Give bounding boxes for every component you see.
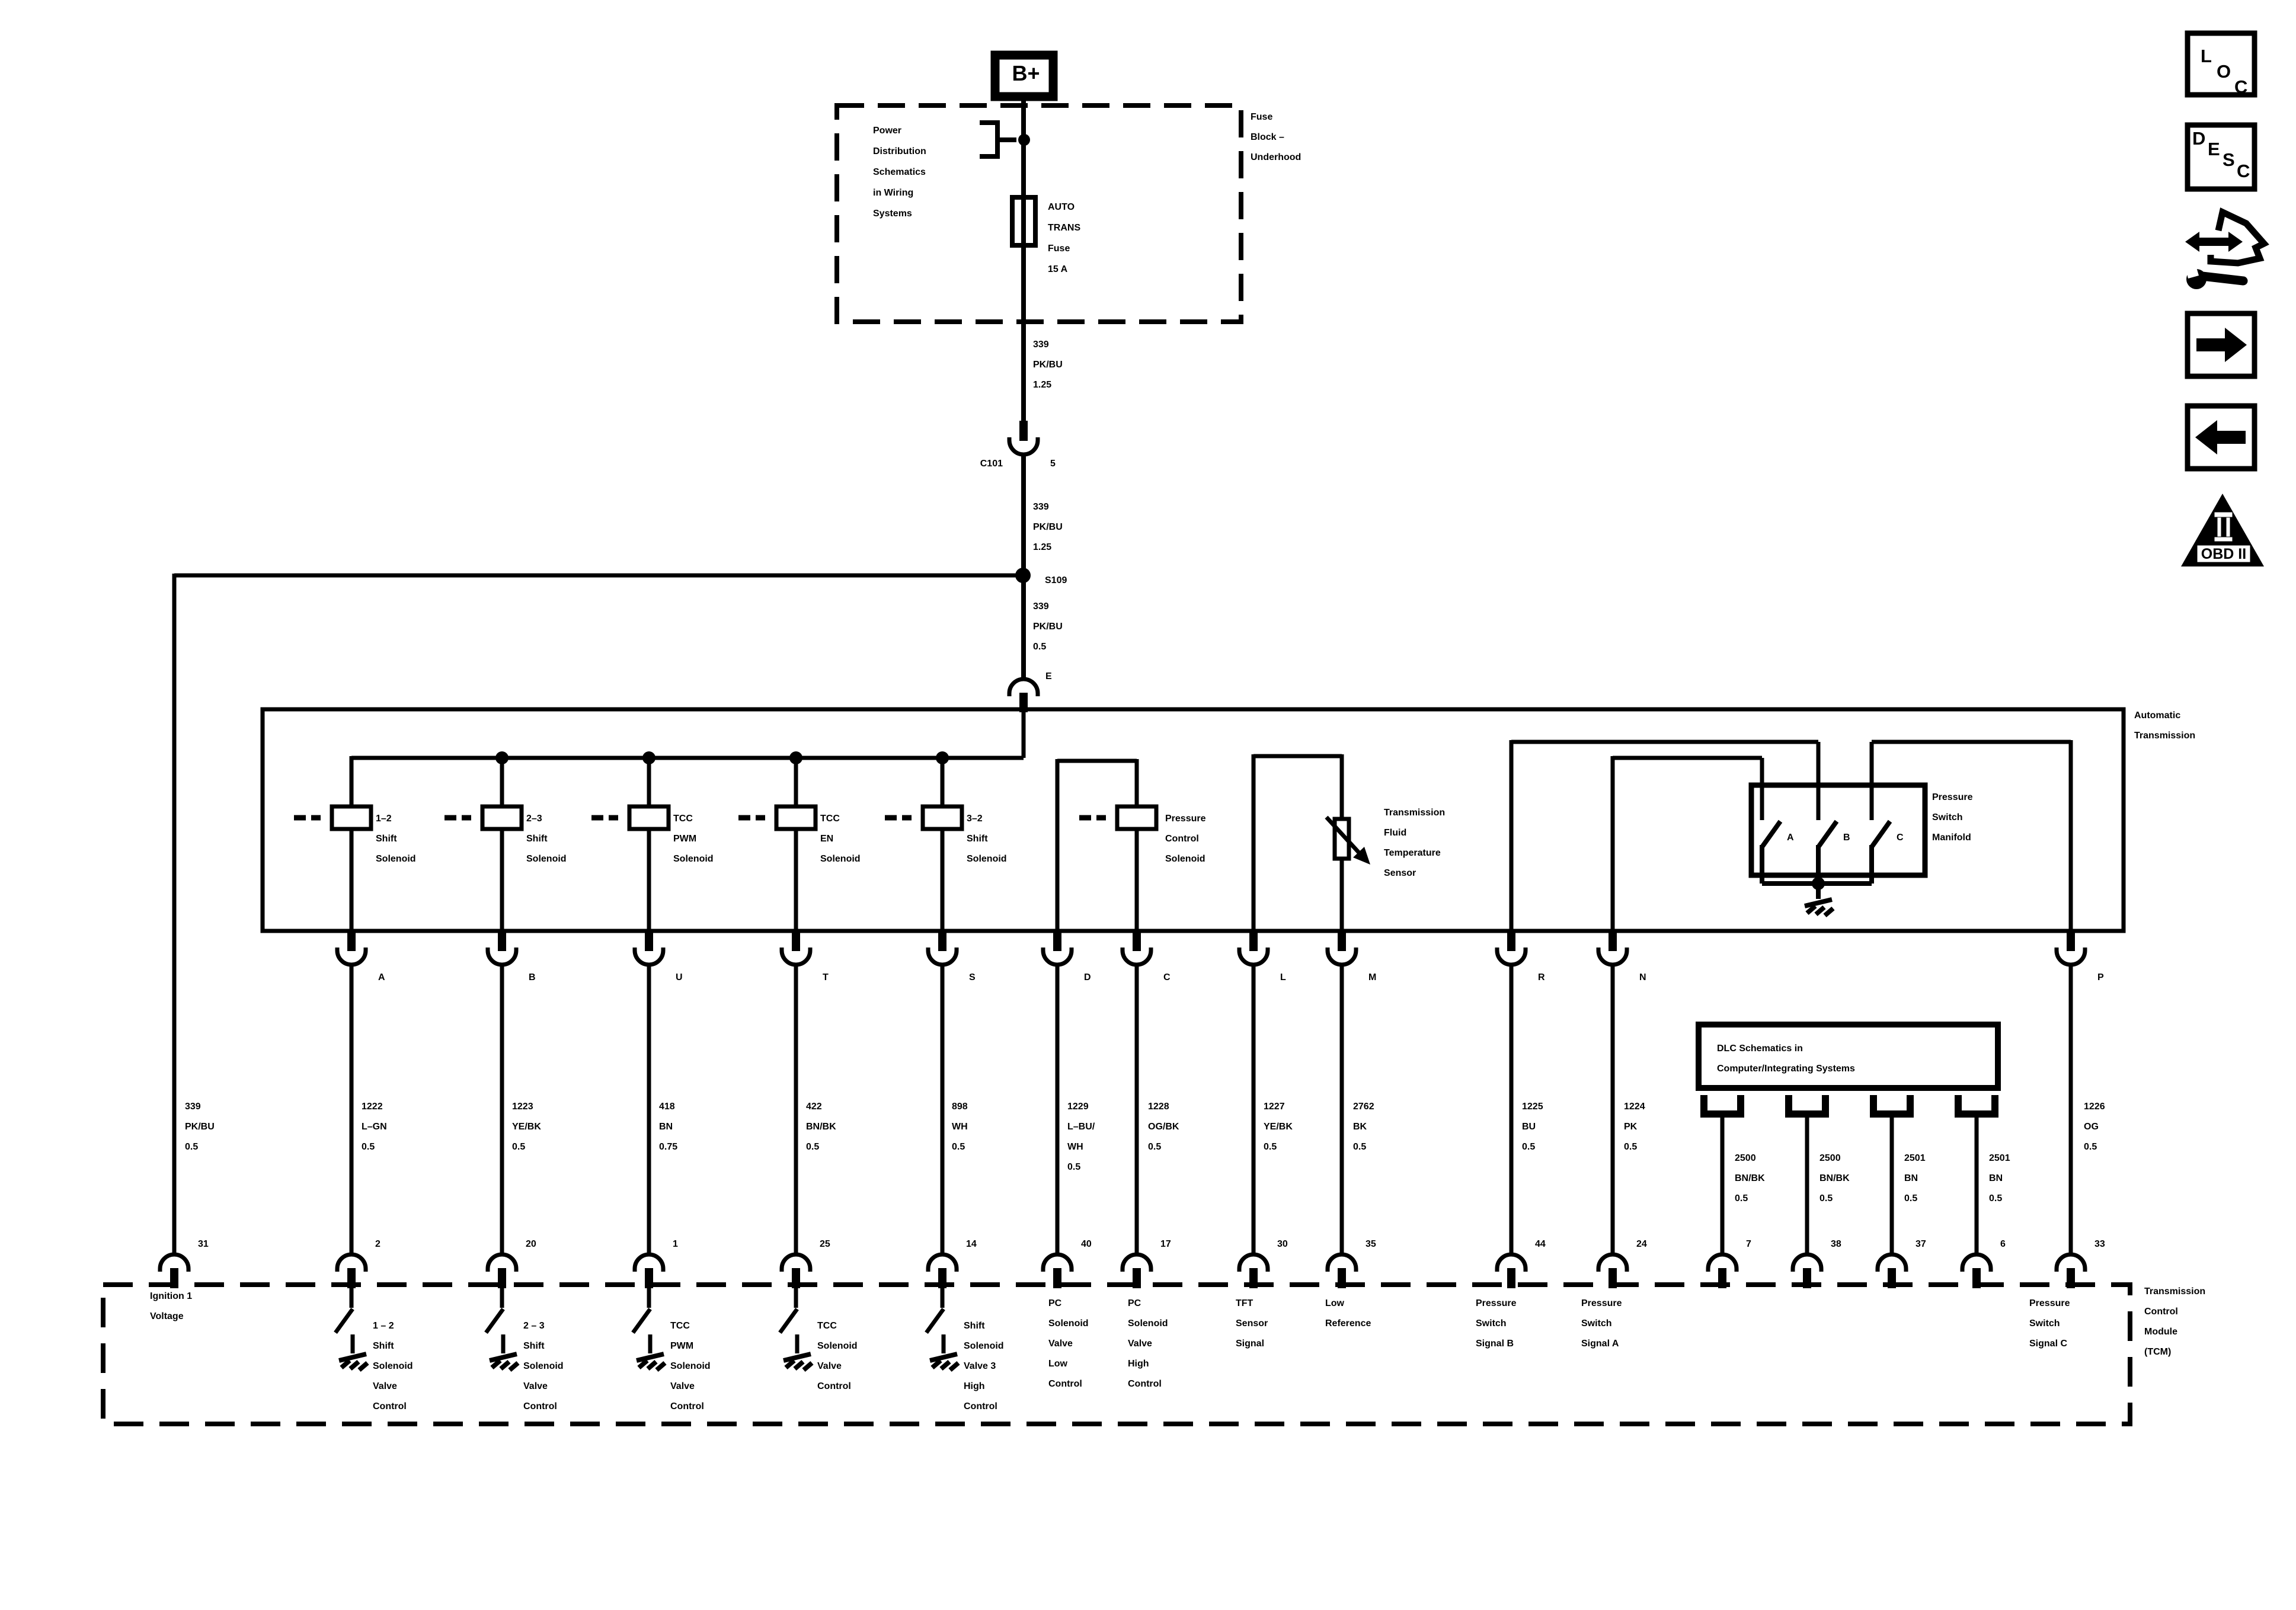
svg-text:Switch: Switch [1932,812,1963,822]
svg-text:Control: Control [373,1401,407,1411]
svg-text:6: 6 [2000,1239,2006,1249]
svg-text:BN: BN [659,1122,673,1132]
svg-text:0.5: 0.5 [1522,1142,1535,1152]
svg-text:0.75: 0.75 [659,1142,677,1152]
svg-text:Solenoid: Solenoid [673,854,714,864]
svg-text:Solenoid: Solenoid [820,854,861,864]
svg-text:44: 44 [1535,1239,1546,1249]
svg-text:Solenoid: Solenoid [526,854,567,864]
svg-text:339: 339 [1033,601,1049,612]
svg-text:AUTO: AUTO [1048,202,1075,212]
svg-text:Switch: Switch [2029,1318,2060,1329]
svg-text:C: C [1897,833,1904,843]
svg-text:Solenoid: Solenoid [1165,854,1205,864]
svg-text:2: 2 [375,1239,380,1249]
svg-text:TFT: TFT [1236,1298,1253,1308]
svg-text:1229: 1229 [1067,1102,1089,1112]
svg-text:0.5: 0.5 [185,1142,198,1152]
svg-text:(TCM): (TCM) [2144,1347,2171,1357]
svg-text:14: 14 [966,1239,977,1249]
svg-text:Solenoid: Solenoid [1128,1318,1168,1329]
svg-text:0.5: 0.5 [1353,1142,1366,1152]
svg-text:1226: 1226 [2084,1102,2105,1112]
svg-text:0.5: 0.5 [1264,1142,1277,1152]
svg-text:PC: PC [1128,1298,1141,1308]
svg-text:Control: Control [523,1401,557,1411]
svg-text:Fuse: Fuse [1048,244,1070,254]
svg-text:1228: 1228 [1148,1102,1169,1112]
svg-text:Manifold: Manifold [1932,833,1971,843]
svg-text:Sensor: Sensor [1384,868,1416,878]
svg-text:Control: Control [1048,1379,1082,1389]
svg-text:Valve: Valve [670,1381,695,1391]
svg-text:L–GN: L–GN [362,1122,387,1132]
svg-text:PC: PC [1048,1298,1062,1308]
svg-text:1–2: 1–2 [376,814,392,824]
svg-text:BN: BN [1904,1173,1918,1183]
svg-text:3–2: 3–2 [967,814,983,824]
svg-text:1.25: 1.25 [1033,542,1051,552]
svg-text:D: D [1084,972,1091,982]
svg-text:Solenoid: Solenoid [1048,1318,1089,1329]
svg-text:OG/BK: OG/BK [1148,1122,1179,1132]
svg-text:0.5: 0.5 [806,1142,819,1152]
svg-text:Signal C: Signal C [2029,1339,2067,1349]
svg-text:E: E [1045,671,1052,681]
svg-text:Shift: Shift [523,1341,545,1351]
svg-text:Ignition 1: Ignition 1 [150,1291,192,1301]
svg-text:Module: Module [2144,1327,2177,1337]
svg-text:T: T [823,972,829,982]
svg-text:Low: Low [1325,1298,1345,1308]
svg-text:P: P [2097,972,2104,982]
svg-text:TCC: TCC [817,1321,837,1331]
svg-text:Solenoid: Solenoid [817,1341,858,1351]
svg-text:1224: 1224 [1624,1102,1645,1112]
svg-text:DLC Schematics in: DLC Schematics in [1717,1044,1803,1054]
svg-text:PK/BU: PK/BU [1033,622,1063,632]
svg-text:TCC: TCC [670,1321,690,1331]
svg-text:1: 1 [673,1239,678,1249]
svg-text:418: 418 [659,1102,675,1112]
svg-text:OBD II: OBD II [2201,546,2246,562]
svg-text:L: L [1280,972,1286,982]
svg-text:Valve: Valve [1128,1339,1152,1349]
svg-text:YE/BK: YE/BK [1264,1122,1293,1132]
svg-text:PK: PK [1624,1122,1638,1132]
svg-text:20: 20 [526,1239,536,1249]
svg-text:C: C [2237,161,2250,181]
svg-text:S109: S109 [1045,575,1067,585]
svg-text:Valve: Valve [523,1381,548,1391]
svg-text:339: 339 [1033,340,1049,350]
svg-text:D: D [2192,128,2205,149]
svg-text:0.5: 0.5 [1989,1193,2002,1204]
svg-text:2 – 3: 2 – 3 [523,1321,545,1331]
svg-text:0.5: 0.5 [1819,1193,1833,1204]
svg-text:Low: Low [1048,1359,1068,1369]
svg-text:Control: Control [817,1381,851,1391]
svg-text:O: O [2217,61,2231,82]
svg-text:YE/BK: YE/BK [512,1122,541,1132]
svg-text:Underhood: Underhood [1251,152,1301,162]
svg-text:A: A [378,972,385,982]
svg-text:TRANS: TRANS [1048,223,1080,233]
svg-text:Temperature: Temperature [1384,848,1441,858]
svg-text:B: B [1843,833,1850,843]
svg-text:Transmission: Transmission [2144,1286,2205,1297]
svg-text:Solenoid: Solenoid [373,1361,413,1371]
svg-text:C: C [1163,972,1171,982]
svg-text:PWM: PWM [673,834,696,844]
svg-text:25: 25 [820,1239,830,1249]
svg-text:0.5: 0.5 [1624,1142,1637,1152]
svg-text:Signal A: Signal A [1581,1339,1619,1349]
svg-text:Pressure: Pressure [1476,1298,1517,1308]
svg-text:0.5: 0.5 [1033,642,1046,652]
svg-text:1223: 1223 [512,1102,533,1112]
svg-text:339: 339 [1033,502,1049,512]
svg-text:BK: BK [1353,1122,1367,1132]
svg-text:BN: BN [1989,1173,2003,1183]
svg-text:33: 33 [2094,1239,2105,1249]
svg-text:Solenoid: Solenoid [376,854,416,864]
svg-text:2762: 2762 [1353,1102,1374,1112]
svg-text:Fuse: Fuse [1251,112,1272,122]
svg-text:0.5: 0.5 [1904,1193,1917,1204]
svg-text:TCC: TCC [673,814,693,824]
svg-text:0.5: 0.5 [1148,1142,1161,1152]
svg-text:898: 898 [952,1102,968,1112]
svg-text:Switch: Switch [1476,1318,1507,1329]
svg-text:C101: C101 [980,459,1003,469]
svg-text:40: 40 [1081,1239,1092,1249]
svg-text:2500: 2500 [1819,1153,1841,1163]
svg-text:Valve: Valve [1048,1339,1073,1349]
svg-text:30: 30 [1277,1239,1288,1249]
svg-text:0.5: 0.5 [1067,1162,1080,1172]
svg-text:Control: Control [1165,834,1199,844]
svg-text:Solenoid: Solenoid [670,1361,711,1371]
svg-text:Pressure: Pressure [1581,1298,1622,1308]
svg-text:M: M [1368,972,1376,982]
svg-text:Pressure: Pressure [1165,814,1206,824]
svg-text:0.5: 0.5 [1735,1193,1748,1204]
svg-text:Power: Power [873,126,901,136]
svg-text:5: 5 [1050,459,1056,469]
svg-text:1222: 1222 [362,1102,383,1112]
svg-text:Solenoid: Solenoid [523,1361,564,1371]
svg-text:High: High [1128,1359,1149,1369]
svg-text:2500: 2500 [1735,1153,1756,1163]
svg-text:in Wiring: in Wiring [873,188,913,198]
svg-text:Control: Control [964,1401,997,1411]
svg-text:339: 339 [185,1102,201,1112]
svg-text:Sensor: Sensor [1236,1318,1268,1329]
svg-text:24: 24 [1636,1239,1647,1249]
svg-text:S: S [969,972,976,982]
svg-text:Automatic: Automatic [2134,710,2180,721]
svg-text:PWM: PWM [670,1341,693,1351]
svg-text:422: 422 [806,1102,822,1112]
svg-text:0.5: 0.5 [2084,1142,2097,1152]
svg-text:Schematics: Schematics [873,167,926,177]
svg-text:E: E [2208,139,2220,159]
svg-text:Switch: Switch [1581,1318,1612,1329]
svg-text:Solenoid: Solenoid [967,854,1007,864]
svg-text:B+: B+ [1012,61,1040,85]
svg-text:Shift: Shift [964,1321,985,1331]
svg-text:B: B [529,972,536,982]
svg-text:WH: WH [1067,1142,1083,1152]
svg-text:0.5: 0.5 [952,1142,965,1152]
svg-text:BN/BK: BN/BK [1735,1173,1765,1183]
svg-text:Reference: Reference [1325,1318,1371,1329]
svg-text:PK/BU: PK/BU [1033,360,1063,370]
svg-text:C: C [2234,76,2247,97]
svg-text:0.5: 0.5 [362,1142,375,1152]
svg-text:A: A [1787,833,1794,843]
svg-text:Distribution: Distribution [873,146,926,156]
svg-text:PK/BU: PK/BU [185,1122,215,1132]
svg-text:Control: Control [2144,1307,2178,1317]
svg-text:1225: 1225 [1522,1102,1543,1112]
svg-text:TCC: TCC [820,814,840,824]
svg-text:Systems: Systems [873,209,912,219]
svg-text:BN/BK: BN/BK [1819,1173,1850,1183]
svg-text:1.25: 1.25 [1033,380,1051,390]
svg-text:R: R [1538,972,1545,982]
svg-text:High: High [964,1381,985,1391]
svg-text:Signal B: Signal B [1476,1339,1514,1349]
svg-text:BU: BU [1522,1122,1536,1132]
svg-text:Valve 3: Valve 3 [964,1361,996,1371]
svg-text:Solenoid: Solenoid [964,1341,1004,1351]
svg-text:Transmission: Transmission [2134,731,2195,741]
svg-text:15 A: 15 A [1048,264,1068,274]
svg-text:2501: 2501 [1989,1153,2010,1163]
svg-text:Voltage: Voltage [150,1311,184,1321]
svg-text:EN: EN [820,834,833,844]
svg-text:L: L [2201,46,2212,66]
svg-text:S: S [2223,149,2235,170]
svg-text:L–BU/: L–BU/ [1067,1122,1095,1132]
svg-text:Valve: Valve [373,1381,397,1391]
svg-text:WH: WH [952,1122,968,1132]
svg-text:2–3: 2–3 [526,814,542,824]
svg-text:31: 31 [198,1239,209,1249]
svg-text:38: 38 [1831,1239,1841,1249]
svg-text:Control: Control [1128,1379,1162,1389]
svg-text:7: 7 [1746,1239,1751,1249]
svg-text:1 – 2: 1 – 2 [373,1321,394,1331]
svg-text:N: N [1639,972,1646,982]
svg-text:Block –: Block – [1251,132,1284,142]
svg-text:1227: 1227 [1264,1102,1285,1112]
svg-text:Shift: Shift [373,1341,394,1351]
svg-text:Control: Control [670,1401,704,1411]
svg-text:OG: OG [2084,1122,2099,1132]
svg-text:0.5: 0.5 [512,1142,525,1152]
svg-text:Transmission: Transmission [1384,808,1445,818]
svg-text:Fluid: Fluid [1384,828,1406,838]
svg-text:Shift: Shift [967,834,988,844]
svg-text:Signal: Signal [1236,1339,1264,1349]
svg-text:37: 37 [1916,1239,1926,1249]
svg-text:Valve: Valve [817,1361,842,1371]
svg-text:Pressure: Pressure [2029,1298,2070,1308]
svg-text:PK/BU: PK/BU [1033,522,1063,532]
svg-text:2501: 2501 [1904,1153,1926,1163]
svg-text:U: U [676,972,683,982]
svg-text:17: 17 [1160,1239,1171,1249]
svg-text:Shift: Shift [376,834,397,844]
svg-text:Pressure: Pressure [1932,792,1973,802]
svg-text:BN/BK: BN/BK [806,1122,836,1132]
svg-text:Shift: Shift [526,834,548,844]
svg-text:Computer/Integrating Systems: Computer/Integrating Systems [1717,1064,1855,1074]
svg-text:35: 35 [1366,1239,1376,1249]
